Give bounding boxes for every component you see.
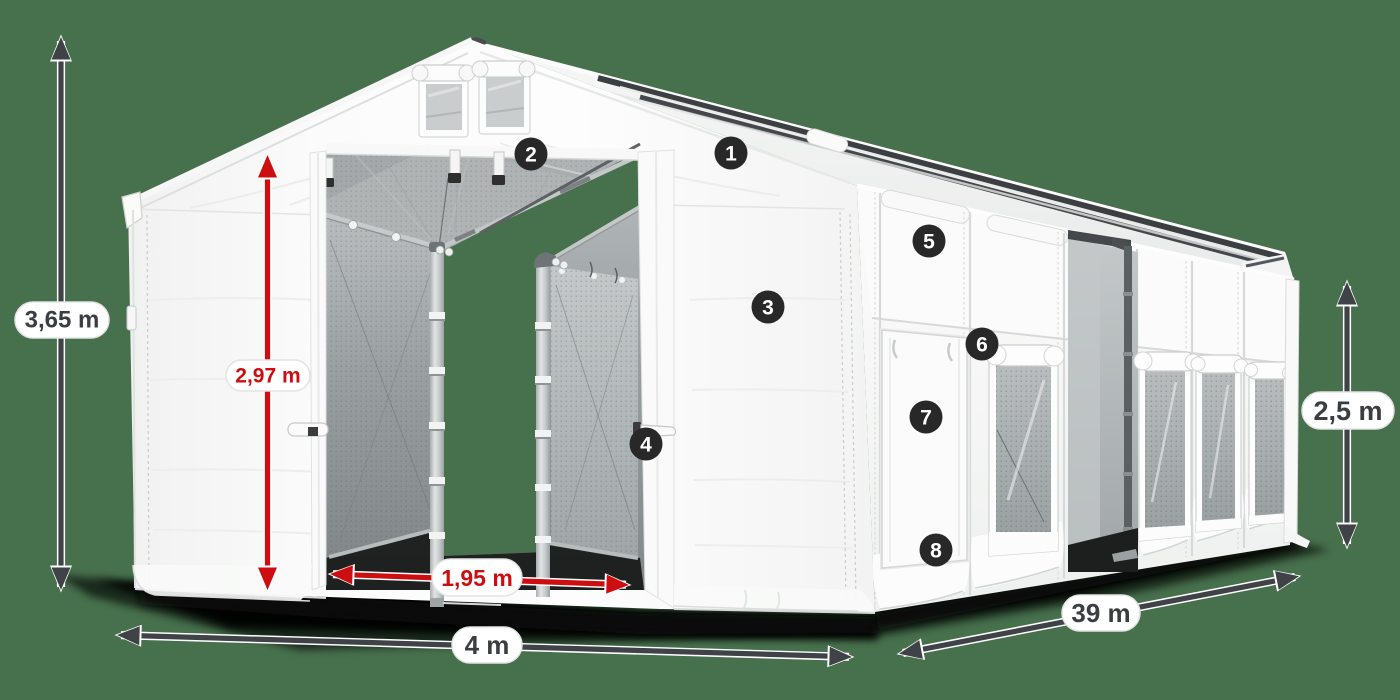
svg-text:5: 5: [923, 231, 935, 254]
svg-text:7: 7: [920, 407, 932, 430]
svg-text:39 m: 39 m: [1071, 598, 1130, 628]
svg-text:1,95 m: 1,95 m: [441, 565, 513, 591]
svg-text:3,65 m: 3,65 m: [25, 307, 100, 334]
svg-text:8: 8: [930, 540, 942, 563]
svg-text:2,97 m: 2,97 m: [235, 365, 300, 388]
svg-text:2: 2: [525, 144, 537, 167]
svg-text:6: 6: [976, 334, 988, 357]
svg-text:4 m: 4 m: [465, 630, 510, 660]
svg-text:3: 3: [762, 297, 774, 320]
svg-text:4: 4: [640, 434, 652, 457]
svg-text:1: 1: [725, 143, 737, 166]
svg-text:2,5 m: 2,5 m: [1313, 396, 1382, 426]
